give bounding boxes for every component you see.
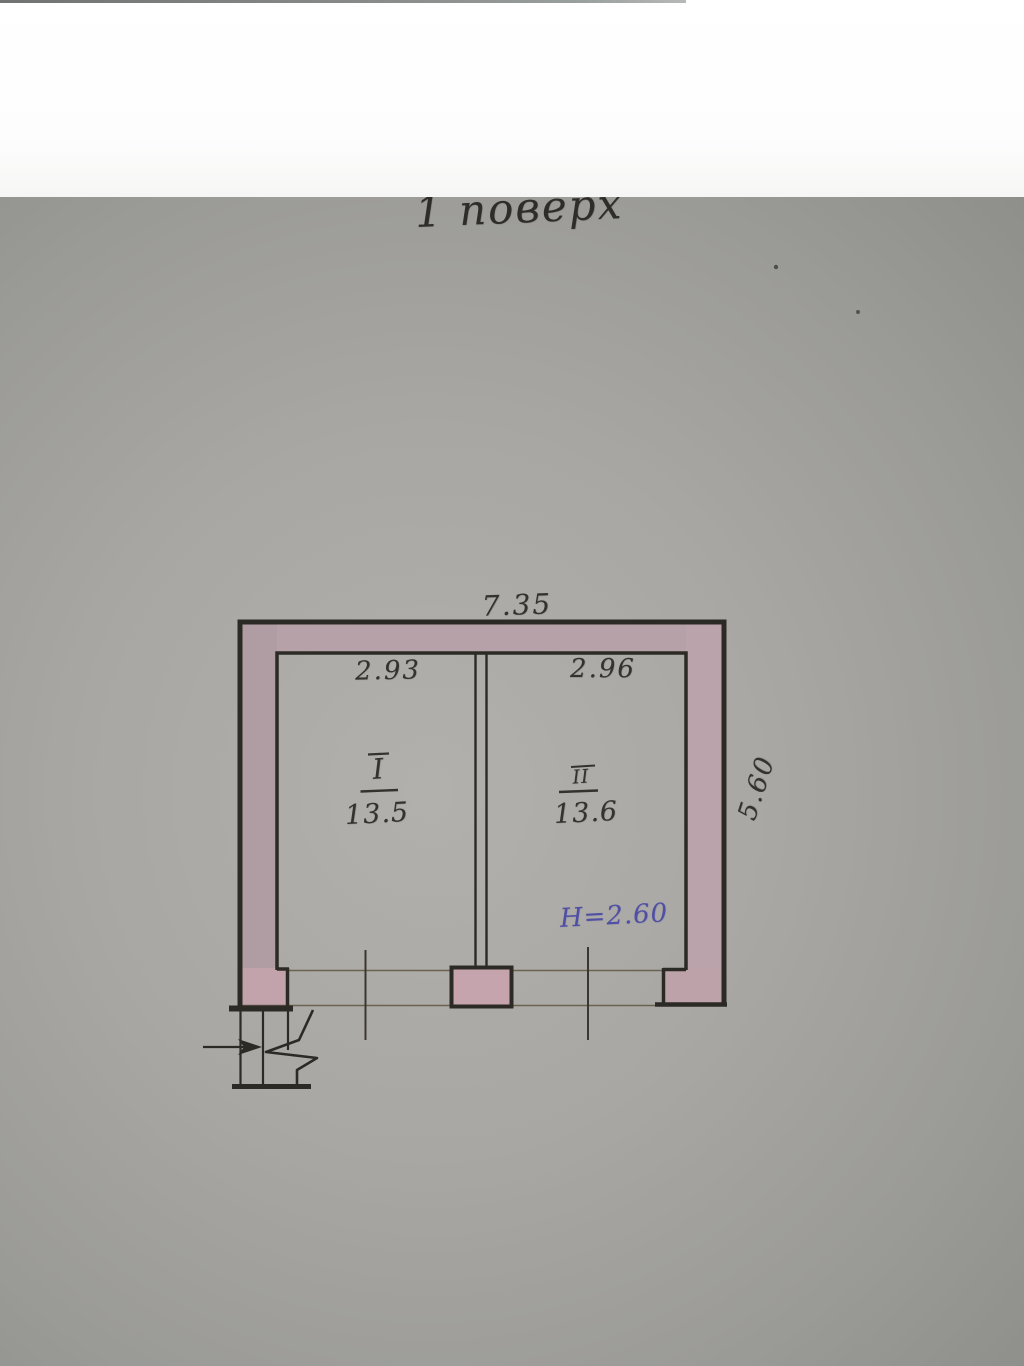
room1-area: 13.5 bbox=[344, 797, 410, 831]
room2-numeral: II bbox=[572, 765, 591, 788]
break-line-zigzag bbox=[266, 1010, 317, 1088]
room2-area: 13.6 bbox=[553, 796, 619, 830]
wall-right-fill bbox=[686, 624, 724, 970]
dim-overall-width: 7.35 bbox=[481, 587, 552, 622]
wall-left-fill bbox=[240, 624, 277, 970]
pier-center bbox=[452, 968, 512, 1007]
room2-fraction-bar bbox=[559, 791, 598, 793]
dim-room1-width: 2.93 bbox=[355, 655, 421, 686]
dim-room2-width: 2.96 bbox=[570, 654, 636, 684]
room1-fraction-bar bbox=[361, 790, 399, 792]
photo-edge-strip bbox=[0, 0, 686, 3]
paper-speck-2 bbox=[856, 310, 860, 314]
wall-top-fill bbox=[240, 624, 724, 652]
pier-right-fill bbox=[663, 968, 724, 1005]
floor-plan-photo: 1 поверх 7.35 2.93 2.96 5.60 I 13.5 II 1… bbox=[0, 0, 1024, 1366]
paper-speck-1 bbox=[774, 265, 778, 269]
outer-wall-outline bbox=[240, 622, 724, 1007]
ceiling-height-note: Н=2.60 bbox=[559, 898, 669, 934]
white-overlay-band bbox=[0, 0, 1024, 197]
pier-left-fill bbox=[240, 968, 287, 1006]
entrance-steps bbox=[203, 1006, 317, 1088]
room1-numeral: I bbox=[371, 752, 384, 786]
